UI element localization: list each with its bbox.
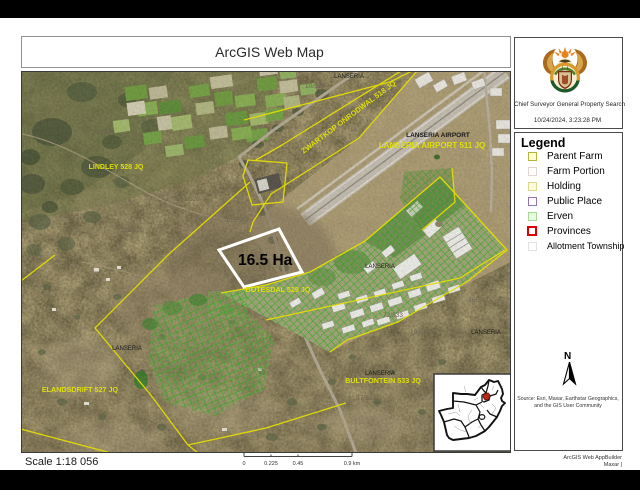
svg-text:19/533: 19/533 — [410, 329, 430, 336]
svg-text:10/528: 10/528 — [305, 83, 325, 90]
svg-text:0: 0 — [242, 461, 245, 467]
svg-text:122/528: 122/528 — [120, 227, 144, 234]
svg-text:LINDLEY 528 JQ: LINDLEY 528 JQ — [89, 164, 144, 171]
svg-text:0.225: 0.225 — [264, 461, 278, 467]
svg-text:97/533: 97/533 — [356, 395, 376, 402]
svg-text:165/528: 165/528 — [63, 213, 87, 220]
svg-text:72/533: 72/533 — [383, 312, 403, 319]
svg-text:16.5 Ha: 16.5 Ha — [238, 252, 293, 269]
svg-text:0.9 km: 0.9 km — [344, 461, 361, 467]
svg-text:LANSERIA AIRPORT: LANSERIA AIRPORT — [406, 132, 470, 139]
svg-text:BOTESDAL 529 JQ: BOTESDAL 529 JQ — [246, 285, 311, 294]
svg-text:BULTFONTEIN 533 JQ: BULTFONTEIN 533 JQ — [345, 376, 421, 385]
svg-text:171/528: 171/528 — [176, 196, 200, 203]
svg-text:LANSERIA AIRPORT 511 JQ: LANSERIA AIRPORT 511 JQ — [379, 141, 486, 150]
svg-text:169/528: 169/528 — [91, 129, 115, 136]
svg-text:0.45: 0.45 — [293, 461, 304, 467]
svg-text:LANSERIA: LANSERIA — [471, 330, 501, 336]
svg-text:LANSERIA: LANSERIA — [112, 346, 142, 352]
svg-text:ELANDSDRIFT 527 JQ: ELANDSDRIFT 527 JQ — [42, 385, 119, 394]
svg-text:105/528: 105/528 — [225, 217, 249, 224]
svg-text:39/543: 39/543 — [468, 297, 488, 304]
svg-text:LANSERIA: LANSERIA — [334, 74, 364, 80]
svg-text:LANSERIA: LANSERIA — [365, 264, 395, 270]
